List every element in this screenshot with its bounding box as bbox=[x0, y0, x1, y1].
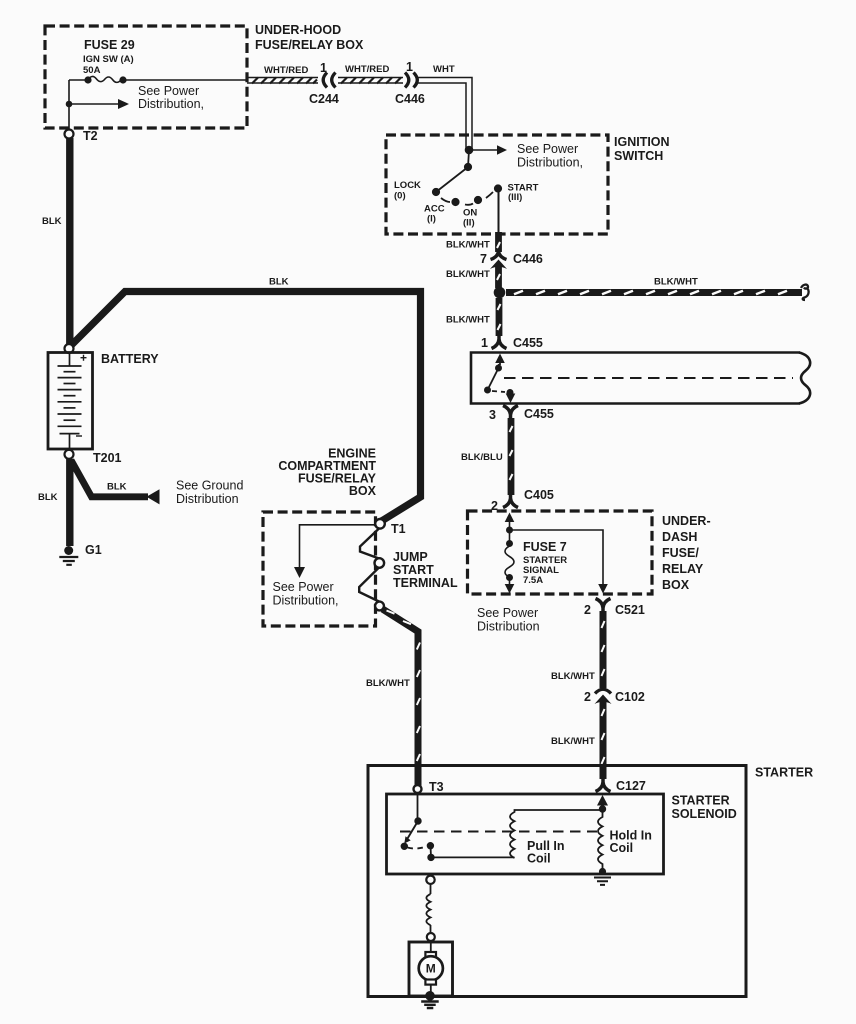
svg-text:FUSE 7: FUSE 7 bbox=[523, 540, 567, 554]
svg-text:C244: C244 bbox=[309, 92, 339, 106]
svg-text:2: 2 bbox=[584, 690, 591, 704]
svg-text:(I): (I) bbox=[427, 214, 436, 225]
svg-text:(0): (0) bbox=[394, 191, 406, 202]
svg-text:BLK/WHT: BLK/WHT bbox=[446, 269, 490, 280]
svg-text:T1: T1 bbox=[391, 522, 406, 536]
svg-text:STARTER: STARTER bbox=[755, 766, 813, 780]
svg-text:Coil: Coil bbox=[610, 841, 634, 855]
svg-text:BOX: BOX bbox=[349, 484, 377, 498]
svg-text:TERMINAL: TERMINAL bbox=[393, 576, 458, 590]
svg-text:T2: T2 bbox=[83, 129, 98, 143]
svg-text:BLK/WHT: BLK/WHT bbox=[551, 736, 595, 747]
svg-text:RELAY: RELAY bbox=[662, 562, 704, 576]
svg-text:SWITCH: SWITCH bbox=[614, 149, 663, 163]
svg-text:G1: G1 bbox=[85, 543, 102, 557]
svg-text:(II): (II) bbox=[463, 218, 475, 229]
svg-text:BLK: BLK bbox=[269, 277, 289, 288]
svg-text:1: 1 bbox=[406, 60, 413, 74]
svg-text:IGN SW (A): IGN SW (A) bbox=[83, 54, 134, 65]
svg-text:WHT: WHT bbox=[433, 64, 455, 75]
svg-text:UNDER-: UNDER- bbox=[662, 514, 711, 528]
svg-text:Distribution,: Distribution, bbox=[273, 594, 339, 608]
svg-text:C405: C405 bbox=[524, 488, 554, 502]
svg-text:Distribution: Distribution bbox=[477, 620, 540, 634]
svg-text:2: 2 bbox=[584, 603, 591, 617]
svg-text:See Power: See Power bbox=[273, 580, 334, 594]
svg-text:Distribution: Distribution bbox=[176, 492, 239, 506]
svg-text:(III): (III) bbox=[508, 192, 522, 203]
svg-text:IGNITION: IGNITION bbox=[614, 135, 670, 149]
svg-text:BLK/WHT: BLK/WHT bbox=[446, 315, 490, 326]
svg-text:C127: C127 bbox=[616, 779, 646, 793]
svg-text:WHT/RED: WHT/RED bbox=[345, 64, 389, 75]
svg-text:WHT/RED: WHT/RED bbox=[264, 65, 308, 76]
svg-text:Distribution,: Distribution, bbox=[138, 97, 204, 111]
svg-text:BLK/WHT: BLK/WHT bbox=[366, 678, 410, 689]
svg-text:FUSE 29: FUSE 29 bbox=[84, 38, 135, 52]
svg-text:T3: T3 bbox=[429, 780, 444, 794]
svg-text:BLK/BLU: BLK/BLU bbox=[461, 452, 503, 463]
svg-text:BLK: BLK bbox=[38, 492, 58, 503]
svg-text:50A: 50A bbox=[83, 65, 101, 76]
svg-text:C446: C446 bbox=[395, 92, 425, 106]
svg-text:M: M bbox=[426, 962, 436, 976]
svg-text:BLK: BLK bbox=[42, 216, 62, 227]
svg-text:C455: C455 bbox=[513, 336, 543, 350]
svg-text:See Power: See Power bbox=[517, 142, 578, 156]
svg-text:See Ground: See Ground bbox=[176, 479, 243, 493]
svg-text:DASH: DASH bbox=[662, 530, 697, 544]
svg-text:C446: C446 bbox=[513, 252, 543, 266]
svg-text:T201: T201 bbox=[93, 451, 122, 465]
svg-text:UNDER-HOOD: UNDER-HOOD bbox=[255, 23, 341, 37]
svg-text:BATTERY: BATTERY bbox=[101, 352, 159, 366]
svg-text:BOX: BOX bbox=[662, 578, 690, 592]
svg-text:BLK: BLK bbox=[107, 482, 127, 493]
svg-text:SOLENOID: SOLENOID bbox=[672, 807, 737, 821]
svg-text:3: 3 bbox=[489, 408, 496, 422]
svg-text:7.5A: 7.5A bbox=[523, 575, 543, 586]
svg-text:C521: C521 bbox=[615, 603, 645, 617]
svg-text:JUMP: JUMP bbox=[393, 550, 428, 564]
svg-text:START: START bbox=[393, 563, 434, 577]
svg-text:BLK/WHT: BLK/WHT bbox=[446, 240, 490, 251]
svg-text:1: 1 bbox=[481, 336, 488, 350]
svg-text:FUSE/RELAY BOX: FUSE/RELAY BOX bbox=[255, 38, 364, 52]
svg-text:See Power: See Power bbox=[138, 84, 199, 98]
svg-text:FUSE/: FUSE/ bbox=[662, 546, 699, 560]
svg-text:Distribution,: Distribution, bbox=[517, 156, 583, 170]
svg-text:C102: C102 bbox=[615, 690, 645, 704]
svg-text:C455: C455 bbox=[524, 407, 554, 421]
svg-text:See Power: See Power bbox=[477, 606, 538, 620]
svg-text:Coil: Coil bbox=[527, 852, 551, 866]
svg-text:BLK/WHT: BLK/WHT bbox=[551, 671, 595, 682]
svg-text:STARTER: STARTER bbox=[672, 794, 730, 808]
svg-text:LOCK: LOCK bbox=[394, 180, 421, 191]
svg-text:BLK/WHT: BLK/WHT bbox=[654, 277, 698, 288]
svg-text:7: 7 bbox=[480, 252, 487, 266]
